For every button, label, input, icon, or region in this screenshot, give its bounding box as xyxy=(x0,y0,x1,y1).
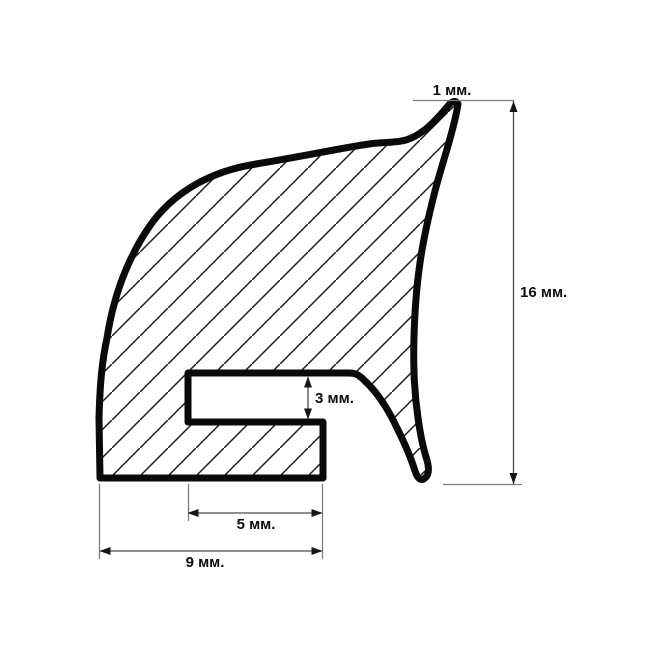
arrowhead-left-icon xyxy=(100,547,111,555)
arrowhead-up-icon xyxy=(510,101,518,112)
dimension-slot-depth: 5 мм. xyxy=(188,484,323,533)
dimension-slot-height: 3 мм. xyxy=(304,377,354,420)
profile-outline xyxy=(99,101,458,479)
technical-drawing-page: 1 мм.16 мм.3 мм.5 мм.9 мм. xyxy=(0,0,650,650)
dim-label-base-width: 9 мм. xyxy=(186,554,225,571)
dimension-tip-thickness: 1 мм. xyxy=(413,82,514,101)
dimension-overall-height: 16 мм. xyxy=(443,101,567,485)
dim-label-slot-depth: 5 мм. xyxy=(237,516,276,533)
arrowhead-up-icon xyxy=(304,377,312,388)
arrowhead-right-icon xyxy=(312,509,323,517)
arrowhead-down-icon xyxy=(304,409,312,420)
dim-label-tip-thickness: 1 мм. xyxy=(433,82,472,99)
profile-cross-section-svg: 1 мм.16 мм.3 мм.5 мм.9 мм. xyxy=(0,0,650,650)
arrowhead-right-icon xyxy=(312,547,323,555)
dim-label-slot-height: 3 мм. xyxy=(315,390,354,407)
dimension-base-width: 9 мм. xyxy=(100,484,323,571)
dim-label-overall-height: 16 мм. xyxy=(520,284,567,301)
arrowhead-down-icon xyxy=(510,473,518,484)
